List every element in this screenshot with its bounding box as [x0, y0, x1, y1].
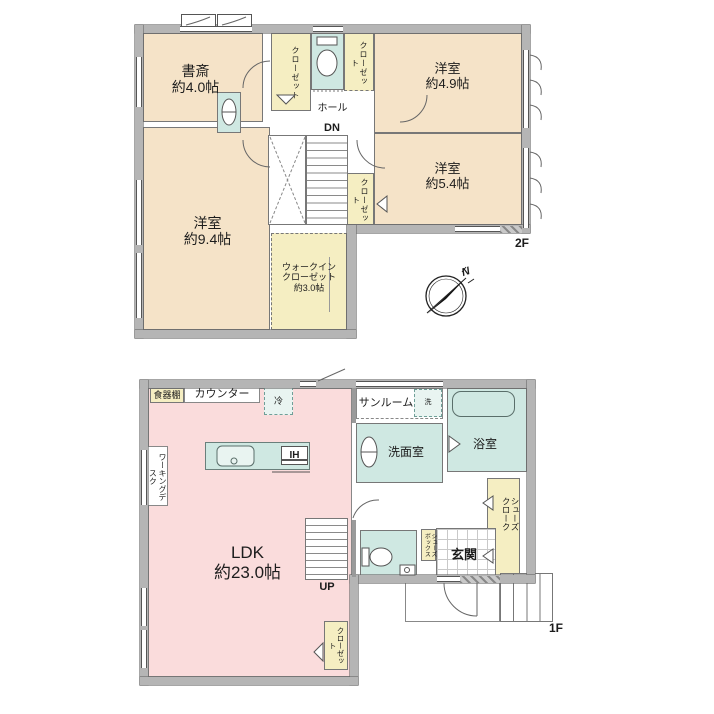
counter-label: カウンター: [184, 388, 260, 401]
wall-1f-connector: [350, 575, 358, 685]
compass-north-label: N: [456, 264, 475, 281]
window-1f-ldk-b: [141, 630, 147, 668]
casement-arc-6: [530, 204, 541, 219]
stairs-up-1f: [305, 518, 348, 580]
wall-1f-bottom-left: [140, 677, 358, 685]
study-label: 書斎 約4.0帖: [143, 63, 248, 95]
awning-window-leaf-b: [217, 14, 252, 27]
room49-label: 洋室 約4.9帖: [390, 62, 505, 92]
room49-name: 洋室: [390, 62, 505, 77]
casement-arc-4: [530, 152, 541, 167]
room54-label: 洋室 約5.4帖: [390, 162, 505, 192]
closet-a-label: クローゼット: [283, 40, 299, 106]
wall-hatch-1f: [460, 576, 500, 583]
floorplan-canvas: 書斎 約4.0帖 洋室 約4.9帖 洋室 約5.4帖 洋室 約9.4帖 ウォーク…: [0, 0, 714, 714]
hall-label: ホール: [305, 103, 360, 115]
stair-void-2f: [268, 135, 306, 225]
sunroom-label: サンルーム: [356, 397, 416, 410]
window-2f-study-left: [136, 57, 142, 107]
window-1f-sunroom: [356, 381, 443, 387]
closet-c-label: クローゼット: [352, 176, 368, 224]
room94-label: 洋室 約9.4帖: [150, 215, 265, 247]
room49-area: 約4.9帖: [390, 77, 505, 92]
stairs-up-label: UP: [310, 581, 344, 594]
wall-2f-connector: [347, 225, 356, 338]
ldk-area: 約23.0帖: [190, 563, 305, 583]
washer-label: 洗: [414, 399, 442, 407]
window-2f-toilet: [313, 26, 343, 32]
floor2-label: 2F: [508, 237, 536, 251]
entrance-porch: [405, 583, 500, 622]
wall-ldk-hall: [352, 520, 356, 577]
room94-name: 洋室: [150, 215, 265, 231]
window-2f-94-left-a: [136, 180, 142, 245]
wall-hatch-2f: [500, 226, 522, 233]
shoes-box-label: シューズボックス: [421, 531, 436, 558]
ih-label: IH: [281, 450, 308, 462]
floor1-label: 1F: [542, 622, 570, 636]
window-2f-49-right: [523, 50, 529, 128]
casement-arc-5: [530, 178, 541, 193]
closet-b-label: クローゼット: [351, 37, 367, 89]
room54-name: 洋室: [390, 162, 505, 177]
bathroom-label: 浴室: [460, 438, 510, 452]
stairs-dn-label: DN: [314, 122, 350, 135]
casement-arc-2: [530, 80, 541, 95]
wall-1f-top: [140, 380, 535, 388]
washroom-label: 洗面室: [372, 446, 440, 460]
wic-line3: 約3.0帖: [272, 283, 346, 293]
window-2f-94-left-b: [136, 253, 142, 318]
wall-1f-right: [527, 380, 535, 583]
room94-area: 約9.4帖: [150, 231, 265, 247]
study-name: 書斎: [143, 63, 248, 79]
wall-2f-bottom-left: [135, 330, 356, 338]
shoes-cloak-label: シューズクローク: [488, 495, 519, 533]
toilet-room-1f: [360, 530, 417, 576]
door-arc-washroom-hall: [353, 500, 379, 518]
toilet-room-2f: [311, 33, 344, 90]
room54-area: 約5.4帖: [390, 177, 505, 192]
wic-line2: クローゼット: [272, 272, 346, 282]
wic-label: ウォークイン クローゼット 約3.0帖: [272, 262, 346, 293]
entrance-label: 玄関: [440, 548, 488, 563]
door-gap-kitchen: [300, 381, 316, 387]
fridge-label: 冷: [264, 396, 293, 406]
window-2f-54-bottom: [455, 226, 503, 232]
window-2f-54-right: [523, 148, 529, 228]
ldk-label: LDK 約23.0帖: [190, 543, 305, 582]
wic-line1: ウォークイン: [272, 262, 346, 272]
window-1f-ldk-a: [141, 588, 147, 626]
casement-arc-1: [530, 55, 541, 70]
hall-basin-counter: [217, 92, 241, 133]
ldk-name: LDK: [190, 543, 305, 563]
casement-arc-3: [530, 105, 541, 120]
dish-shelf-label: 食器棚: [150, 390, 184, 400]
awning-window-leaf-a: [181, 14, 216, 27]
study-area: 約4.0帖: [143, 79, 248, 95]
bathtub: [452, 391, 515, 417]
working-desk-label: ワーキングデスク: [147, 450, 167, 503]
stairs-down-2f: [306, 135, 348, 225]
closet-1f-label: クローゼット: [328, 625, 344, 667]
